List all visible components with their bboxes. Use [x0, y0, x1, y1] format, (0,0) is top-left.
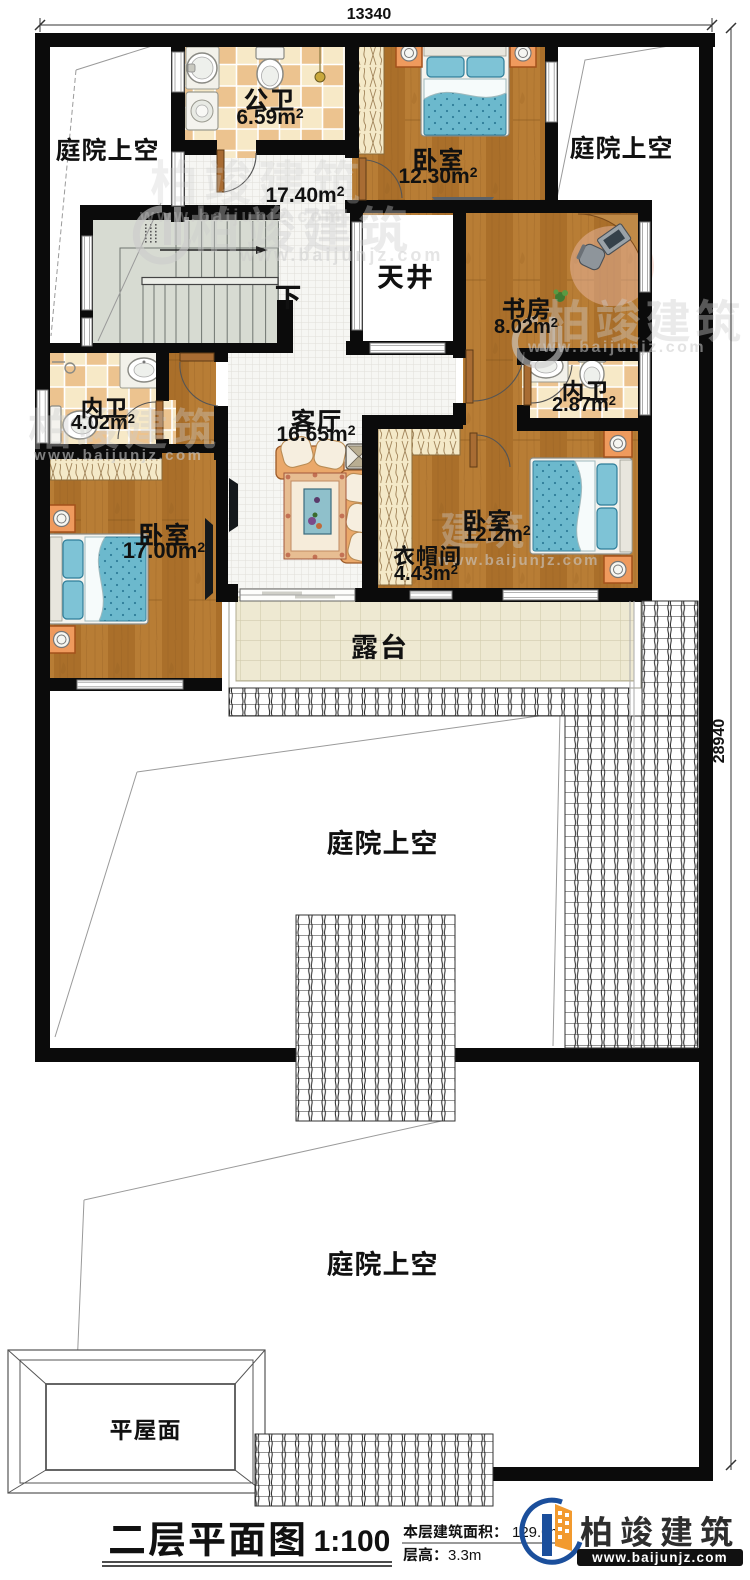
svg-text:28940: 28940 [711, 719, 728, 764]
svg-text:17.40m2: 17.40m2 [265, 183, 344, 207]
svg-text:12.30m2: 12.30m2 [398, 164, 477, 188]
svg-text:1:100: 1:100 [314, 1525, 391, 1558]
svg-text:4.43m2: 4.43m2 [394, 562, 458, 585]
svg-text:17.00m2: 17.00m2 [123, 538, 206, 563]
svg-text:4.02m2: 4.02m2 [71, 411, 135, 434]
svg-text:6.59m2: 6.59m2 [236, 105, 304, 129]
svg-text:www.baijunjz.com: www.baijunjz.com [591, 1550, 728, 1565]
svg-text:www.baijunjz.com: www.baijunjz.com [437, 552, 599, 569]
svg-text:www.baijunjz.com: www.baijunjz.com [239, 245, 443, 265]
svg-text:2.87m2: 2.87m2 [552, 393, 616, 416]
svg-text:3.3m: 3.3m [448, 1547, 481, 1564]
svg-text:16.65m2: 16.65m2 [276, 422, 355, 446]
svg-text:8.02m2: 8.02m2 [494, 315, 558, 338]
svg-text:13340: 13340 [347, 6, 392, 23]
svg-text:12.2m2: 12.2m2 [463, 522, 531, 546]
svg-text:www.baijunjz.com: www.baijunjz.com [33, 447, 203, 464]
